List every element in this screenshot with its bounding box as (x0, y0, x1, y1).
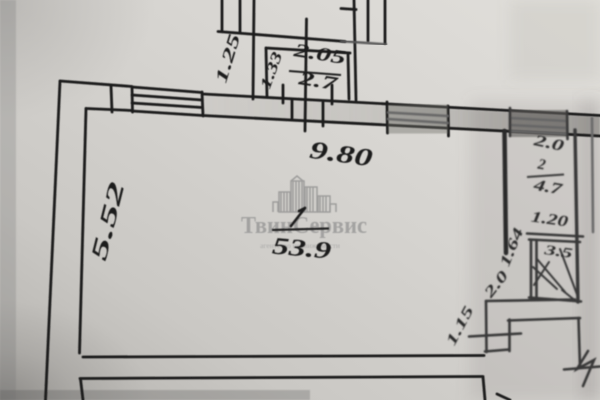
svg-text:53.9: 53.9 (271, 234, 332, 265)
svg-text:ТвинСервис: ТвинСервис (241, 213, 367, 239)
